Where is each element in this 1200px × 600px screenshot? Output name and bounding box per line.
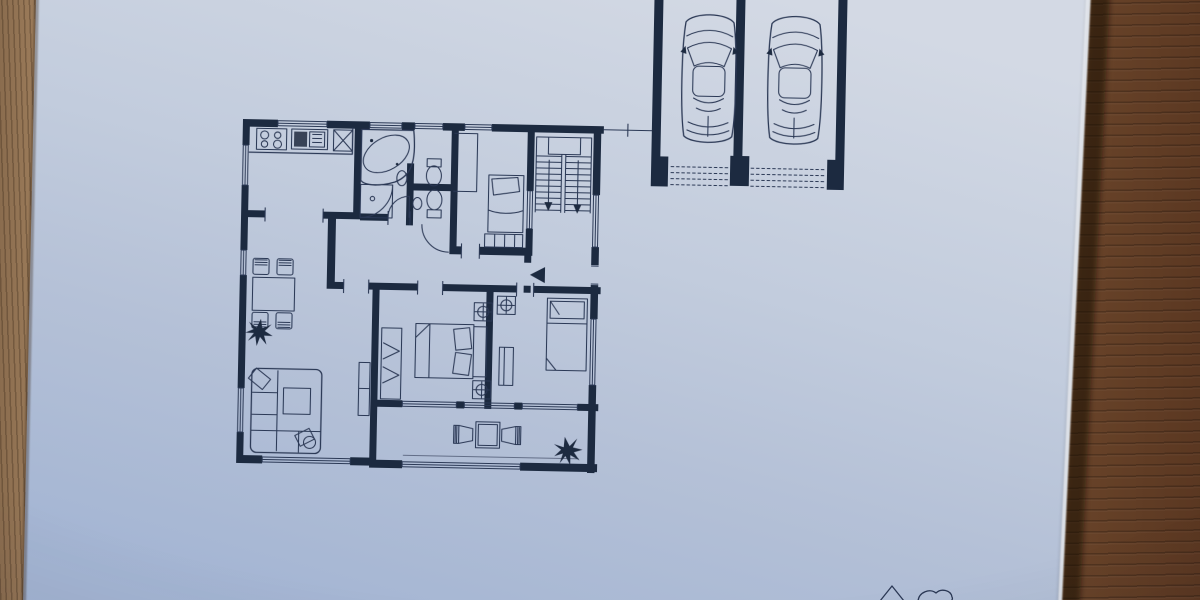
photo-scene (0, 0, 1200, 600)
floorplan-photo (0, 0, 1200, 600)
paper-sheet (23, 0, 1090, 600)
